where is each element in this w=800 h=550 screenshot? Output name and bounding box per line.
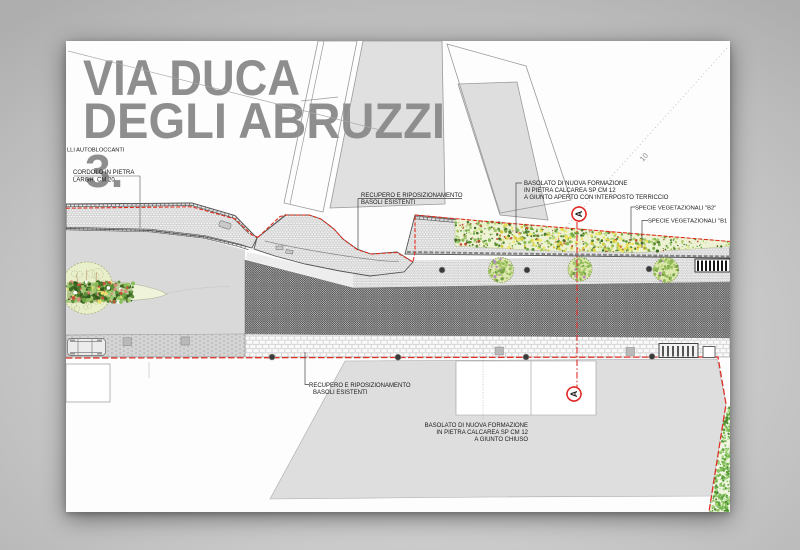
svg-text:BASOLATO DI NUOVA FORMAZIONE: BASOLATO DI NUOVA FORMAZIONE: [425, 423, 528, 429]
svg-text:SPECIE VEGETAZIONALI "B2": SPECIE VEGETAZIONALI "B2": [635, 205, 716, 211]
svg-text:BASOLATO DI NUOVA FORMAZIONE: BASOLATO DI NUOVA FORMAZIONE: [524, 181, 627, 187]
svg-text:A: A: [569, 390, 579, 397]
svg-text:10: 10: [638, 151, 650, 163]
svg-text:RECUPERO E RIPOSIZIONAMENTO: RECUPERO E RIPOSIZIONAMENTO: [361, 193, 463, 199]
svg-text:A: A: [574, 210, 584, 217]
svg-text:RECUPERO E RIPOSIZIONAMENTO: RECUPERO E RIPOSIZIONAMENTO: [309, 383, 411, 389]
svg-text:IN PIETRA CALCAREA SP CM 12: IN PIETRA CALCAREA SP CM 12: [436, 430, 528, 436]
svg-text:DEGLI ABRUZZI: DEGLI ABRUZZI: [83, 93, 445, 149]
svg-text:CORDOLO IN PIETRA: CORDOLO IN PIETRA: [73, 170, 134, 176]
svg-text:IN PIETRA CALCAREA SP CM 12: IN PIETRA CALCAREA SP CM 12: [524, 188, 616, 194]
svg-text:SPECIE VEGETAZIONALI "B1: SPECIE VEGETAZIONALI "B1: [648, 219, 727, 225]
svg-text:A GIUNTO APERTO CON INTERPOSTO: A GIUNTO APERTO CON INTERPOSTO TERRICCIO: [524, 195, 669, 201]
svg-text:BASOLI ESISTENTI: BASOLI ESISTENTI: [313, 390, 368, 396]
svg-text:LLI AUTOBLOCCANTI: LLI AUTOBLOCCANTI: [67, 148, 125, 154]
svg-text:BASOLI ESISTENTI: BASOLI ESISTENTI: [361, 200, 416, 206]
svg-text:A GIUNTO CHIUSO: A GIUNTO CHIUSO: [474, 437, 528, 443]
svg-text:LARGH. CM 20: LARGH. CM 20: [73, 178, 115, 184]
